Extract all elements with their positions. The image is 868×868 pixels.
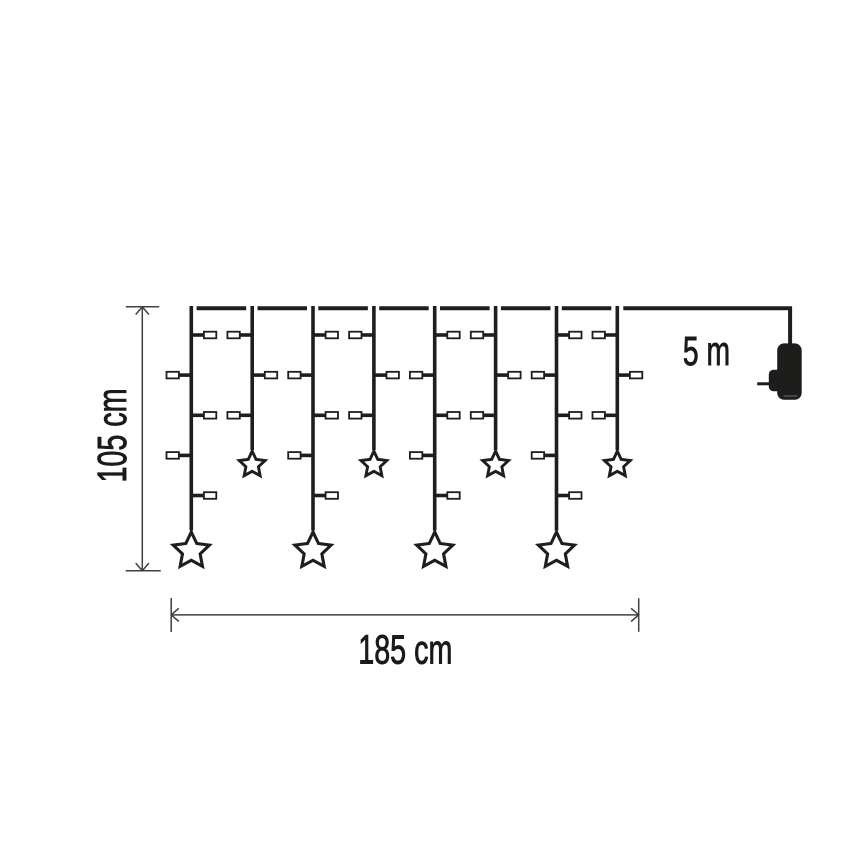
svg-text:105 cm: 105 cm (90, 388, 135, 482)
svg-text:5 m: 5 m (683, 329, 730, 374)
svg-text:185 cm: 185 cm (358, 628, 452, 673)
